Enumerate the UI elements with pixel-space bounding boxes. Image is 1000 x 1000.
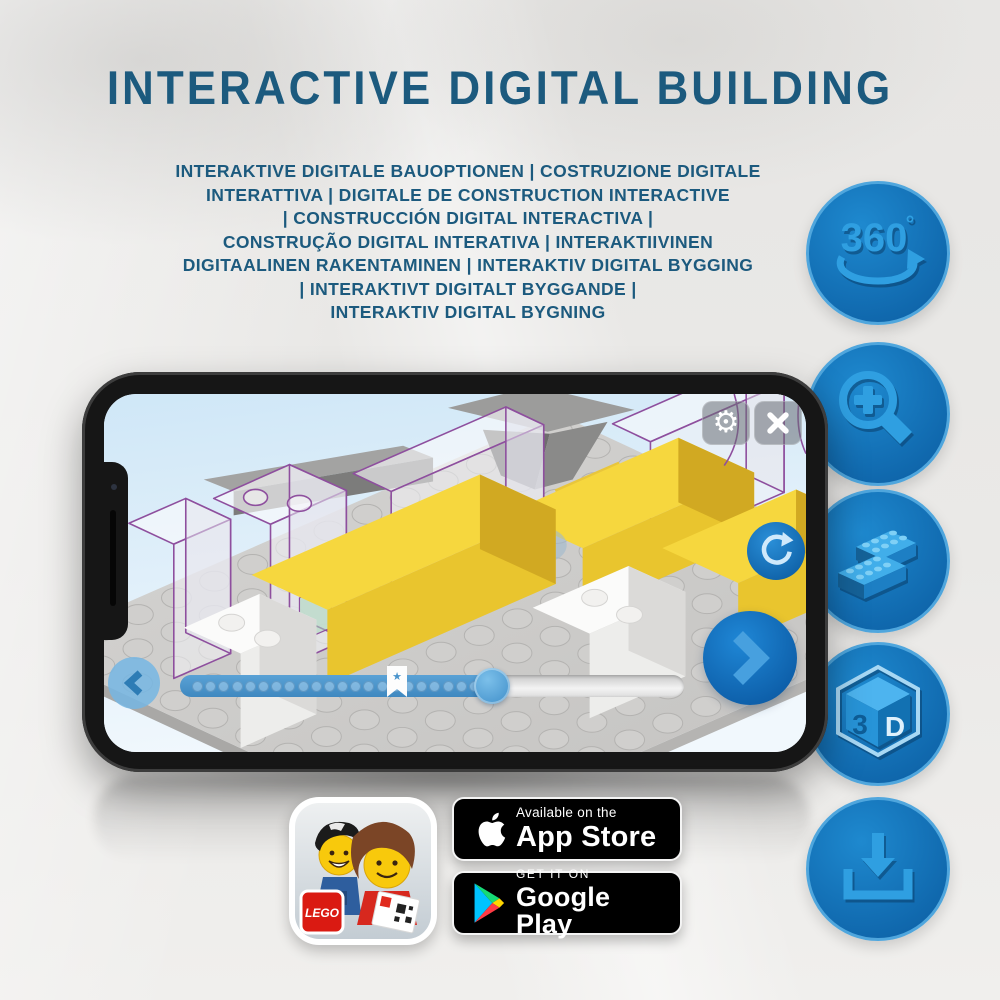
- speaker-slit: [110, 510, 116, 606]
- progress-dot: [443, 681, 454, 692]
- page-canvas: INTERACTIVE DIGITAL BUILDING INTERAKTIVE…: [0, 0, 1000, 1000]
- page-title: INTERACTIVE DIGITAL BUILDING: [0, 62, 1000, 116]
- progress-dot: [258, 681, 269, 692]
- 3d-cube-icon: 3 D: [826, 662, 930, 766]
- chevron-left-icon: [122, 668, 146, 698]
- chevron-right-icon: [728, 628, 772, 688]
- rotate-icon: [754, 529, 798, 573]
- google-play-tagline: GET IT ON: [516, 868, 668, 880]
- rotate-view-button[interactable]: [747, 522, 805, 580]
- google-play-badge[interactable]: GET IT ON Google Play: [452, 871, 682, 935]
- svg-text:360: 360: [841, 216, 908, 260]
- download-icon: [826, 817, 930, 921]
- progress-slider-track[interactable]: ★: [180, 675, 684, 697]
- feature-download-badge: [806, 797, 950, 941]
- brick-stack-icon: [826, 509, 930, 613]
- app-store-tagline: Available on the: [516, 806, 656, 820]
- progress-dot: [271, 681, 282, 692]
- progress-dot: [284, 681, 295, 692]
- settings-button[interactable]: ⚙: [702, 401, 750, 445]
- app-screen: ⚙: [104, 394, 806, 752]
- progress-dot: [456, 681, 467, 692]
- google-play-icon: [466, 882, 512, 924]
- progress-dot: [245, 681, 256, 692]
- progress-step-dots: [180, 675, 492, 697]
- close-icon: [764, 409, 792, 437]
- subtitle-line: CONSTRUÇÃO DIGITAL INTERATIVA | INTERAKT…: [88, 231, 848, 255]
- lego-3d-scene: [104, 394, 806, 752]
- svg-text:°: °: [906, 211, 915, 236]
- svg-text:D: D: [885, 711, 905, 742]
- progress-dot: [350, 681, 361, 692]
- progress-dot: [298, 681, 309, 692]
- progress-dot: [232, 681, 243, 692]
- progress-dot: [416, 681, 427, 692]
- lego-app-icon[interactable]: LEGO: [289, 797, 437, 945]
- previous-step-button[interactable]: [108, 657, 160, 709]
- progress-dot: [205, 681, 216, 692]
- next-step-button[interactable]: [703, 611, 797, 705]
- close-button[interactable]: [754, 401, 802, 445]
- feature-360-badge: 360 °: [806, 181, 950, 325]
- app-store-name: App Store: [516, 823, 656, 852]
- zoom-in-icon: [826, 362, 930, 466]
- svg-text:LEGO: LEGO: [305, 906, 340, 920]
- progress-dot: [324, 681, 335, 692]
- progress-dot: [429, 681, 440, 692]
- progress-dot: [337, 681, 348, 692]
- progress-dot: [218, 681, 229, 692]
- app-store-badge[interactable]: Available on the App Store: [452, 797, 682, 861]
- 360-rotation-icon: 360 °: [824, 199, 932, 307]
- gear-icon: ⚙: [713, 408, 740, 438]
- svg-text:★: ★: [392, 670, 402, 683]
- google-play-name: Google Play: [516, 884, 668, 938]
- subtitle-block: INTERAKTIVE DIGITALE BAUOPTIONEN | COSTR…: [88, 160, 848, 325]
- apple-icon: [466, 806, 512, 852]
- subtitle-line: | CONSTRUCCIÓN DIGITAL INTERACTIVA |: [88, 207, 848, 231]
- subtitle-line: INTERATTIVA | DIGITALE DE CONSTRUCTION I…: [88, 184, 848, 208]
- lego-app-artwork: LEGO: [295, 803, 431, 939]
- progress-fill: [180, 675, 492, 697]
- progress-dot: [311, 681, 322, 692]
- camera-dot: [111, 484, 117, 490]
- phone-notch: [101, 462, 128, 640]
- bookmark-marker[interactable]: ★: [387, 666, 407, 698]
- subtitle-line: DIGITAALINEN RAKENTAMINEN | INTERAKTIV D…: [88, 254, 848, 278]
- subtitle-line: INTERAKTIV DIGITAL BYGNING: [88, 301, 848, 325]
- progress-dot: [192, 681, 203, 692]
- progress-dot: [363, 681, 374, 692]
- svg-text:3: 3: [852, 709, 868, 740]
- subtitle-line: INTERAKTIVE DIGITALE BAUOPTIONEN | COSTR…: [88, 160, 848, 184]
- subtitle-line: | INTERAKTIVT DIGITALT BYGGANDE |: [88, 278, 848, 302]
